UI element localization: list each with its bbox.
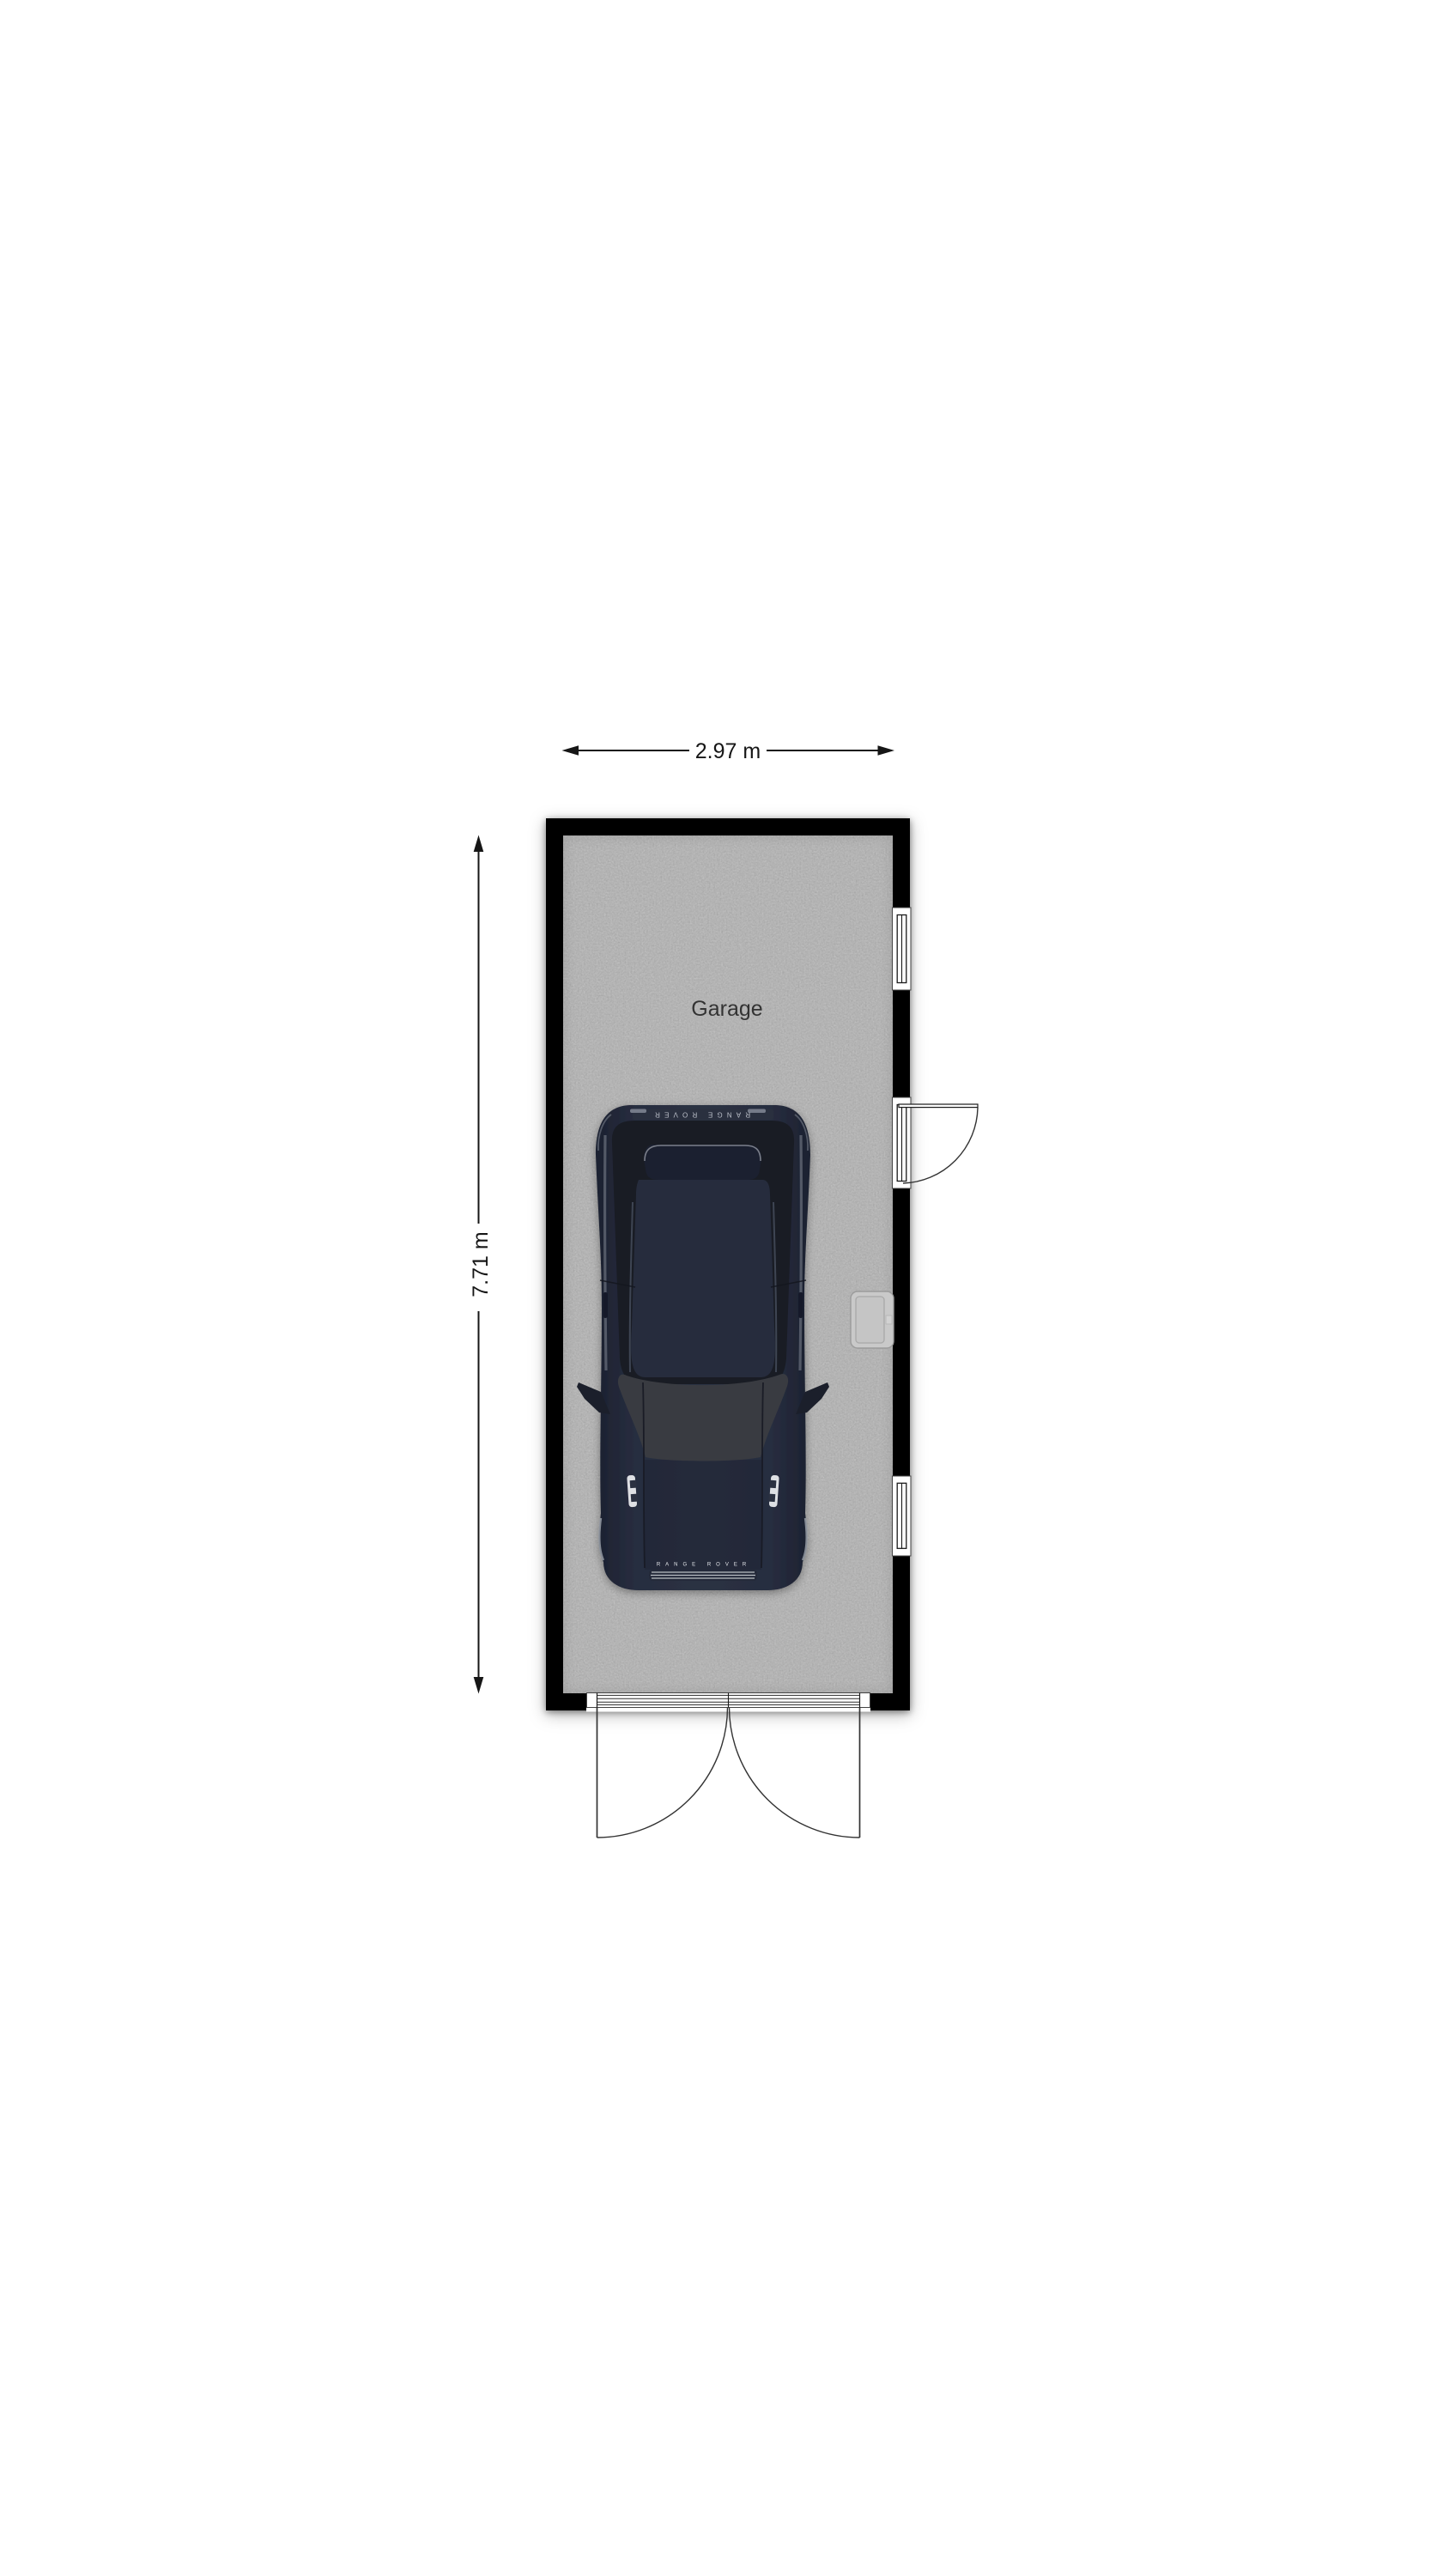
svg-text:Garage: Garage	[691, 997, 762, 1021]
svg-text:2.97 m: 2.97 m	[695, 739, 761, 763]
svg-text:RANGE ROVER: RANGE ROVER	[651, 1111, 750, 1119]
svg-text:RANGE ROVER: RANGE ROVER	[657, 1563, 751, 1568]
svg-text:7.71 m: 7.71 m	[469, 1231, 493, 1297]
